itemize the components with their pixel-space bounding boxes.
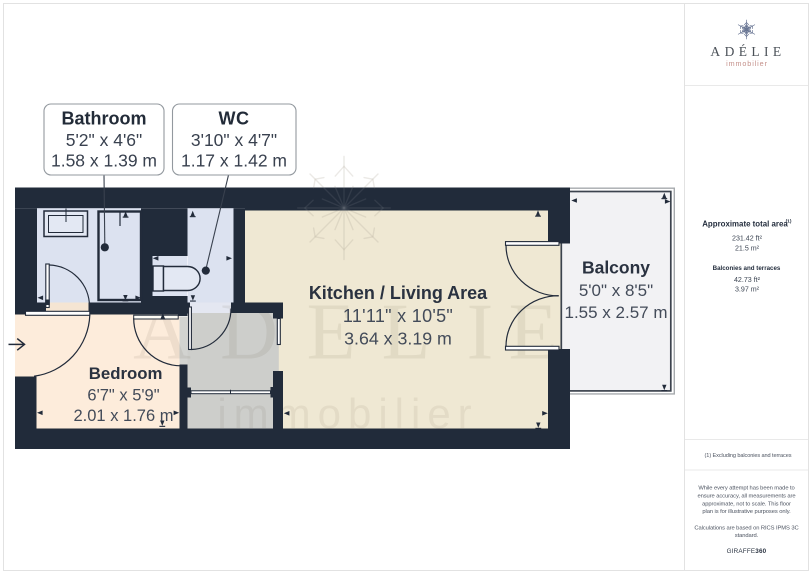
svg-text:approximate, not to scale. Thi: approximate, not to scale. This floor [702,501,791,507]
svg-text:11'11" x 10'5": 11'11" x 10'5" [343,306,453,326]
svg-text:WC: WC [219,109,250,129]
svg-text:5'0" x 8'5": 5'0" x 8'5" [579,281,653,300]
svg-text:While every attempt has been m: While every attempt has been made to [698,486,794,492]
svg-text:3.64 x 3.19 m: 3.64 x 3.19 m [344,329,452,349]
svg-text:1.55 x 2.57 m: 1.55 x 2.57 m [564,303,667,322]
svg-text:1.17 x 1.42 m: 1.17 x 1.42 m [181,150,287,170]
svg-text:1.58 x 1.39 m: 1.58 x 1.39 m [51,150,157,170]
svg-text:Bedroom: Bedroom [89,364,163,383]
svg-text:GIRAFFE360: GIRAFFE360 [727,548,767,555]
svg-text:3.97 m²: 3.97 m² [735,286,760,294]
svg-text:42.73 ft²: 42.73 ft² [734,276,761,284]
svg-text:(1) Excluding balconies and te: (1) Excluding balconies and terraces [705,453,792,459]
svg-text:21.5 m²: 21.5 m² [735,245,760,253]
svg-text:standard.: standard. [735,533,759,539]
svg-text:Calculations are based on RICS: Calculations are based on RICS IPMS 3C [694,525,798,531]
svg-text:Kitchen / Living Area: Kitchen / Living Area [309,283,488,303]
svg-text:5'2" x 4'6": 5'2" x 4'6" [66,130,143,150]
svg-text:Approximate total area: Approximate total area [702,219,788,228]
svg-text:3'10" x 4'7": 3'10" x 4'7" [191,130,277,150]
svg-text:plan is for illustrative purpo: plan is for illustrative purposes only. [702,509,791,515]
svg-text:ensure accuracy, all measureme: ensure accuracy, all measurements are [697,493,795,499]
svg-text:ADÉLIE: ADÉLIE [710,44,785,59]
svg-text:D: D [220,289,278,377]
svg-text:231.42 ft²: 231.42 ft² [732,235,763,243]
svg-text:(1): (1) [786,219,792,225]
svg-text:6'7" x 5'9": 6'7" x 5'9" [87,386,159,404]
svg-text:Balcony: Balcony [582,258,650,278]
svg-text:2.01 x 1.76 m: 2.01 x 1.76 m [74,407,174,425]
svg-text:Bathroom: Bathroom [62,109,147,129]
svg-text:Balconies and terraces: Balconies and terraces [713,265,781,272]
svg-text:immobilier: immobilier [726,59,768,68]
